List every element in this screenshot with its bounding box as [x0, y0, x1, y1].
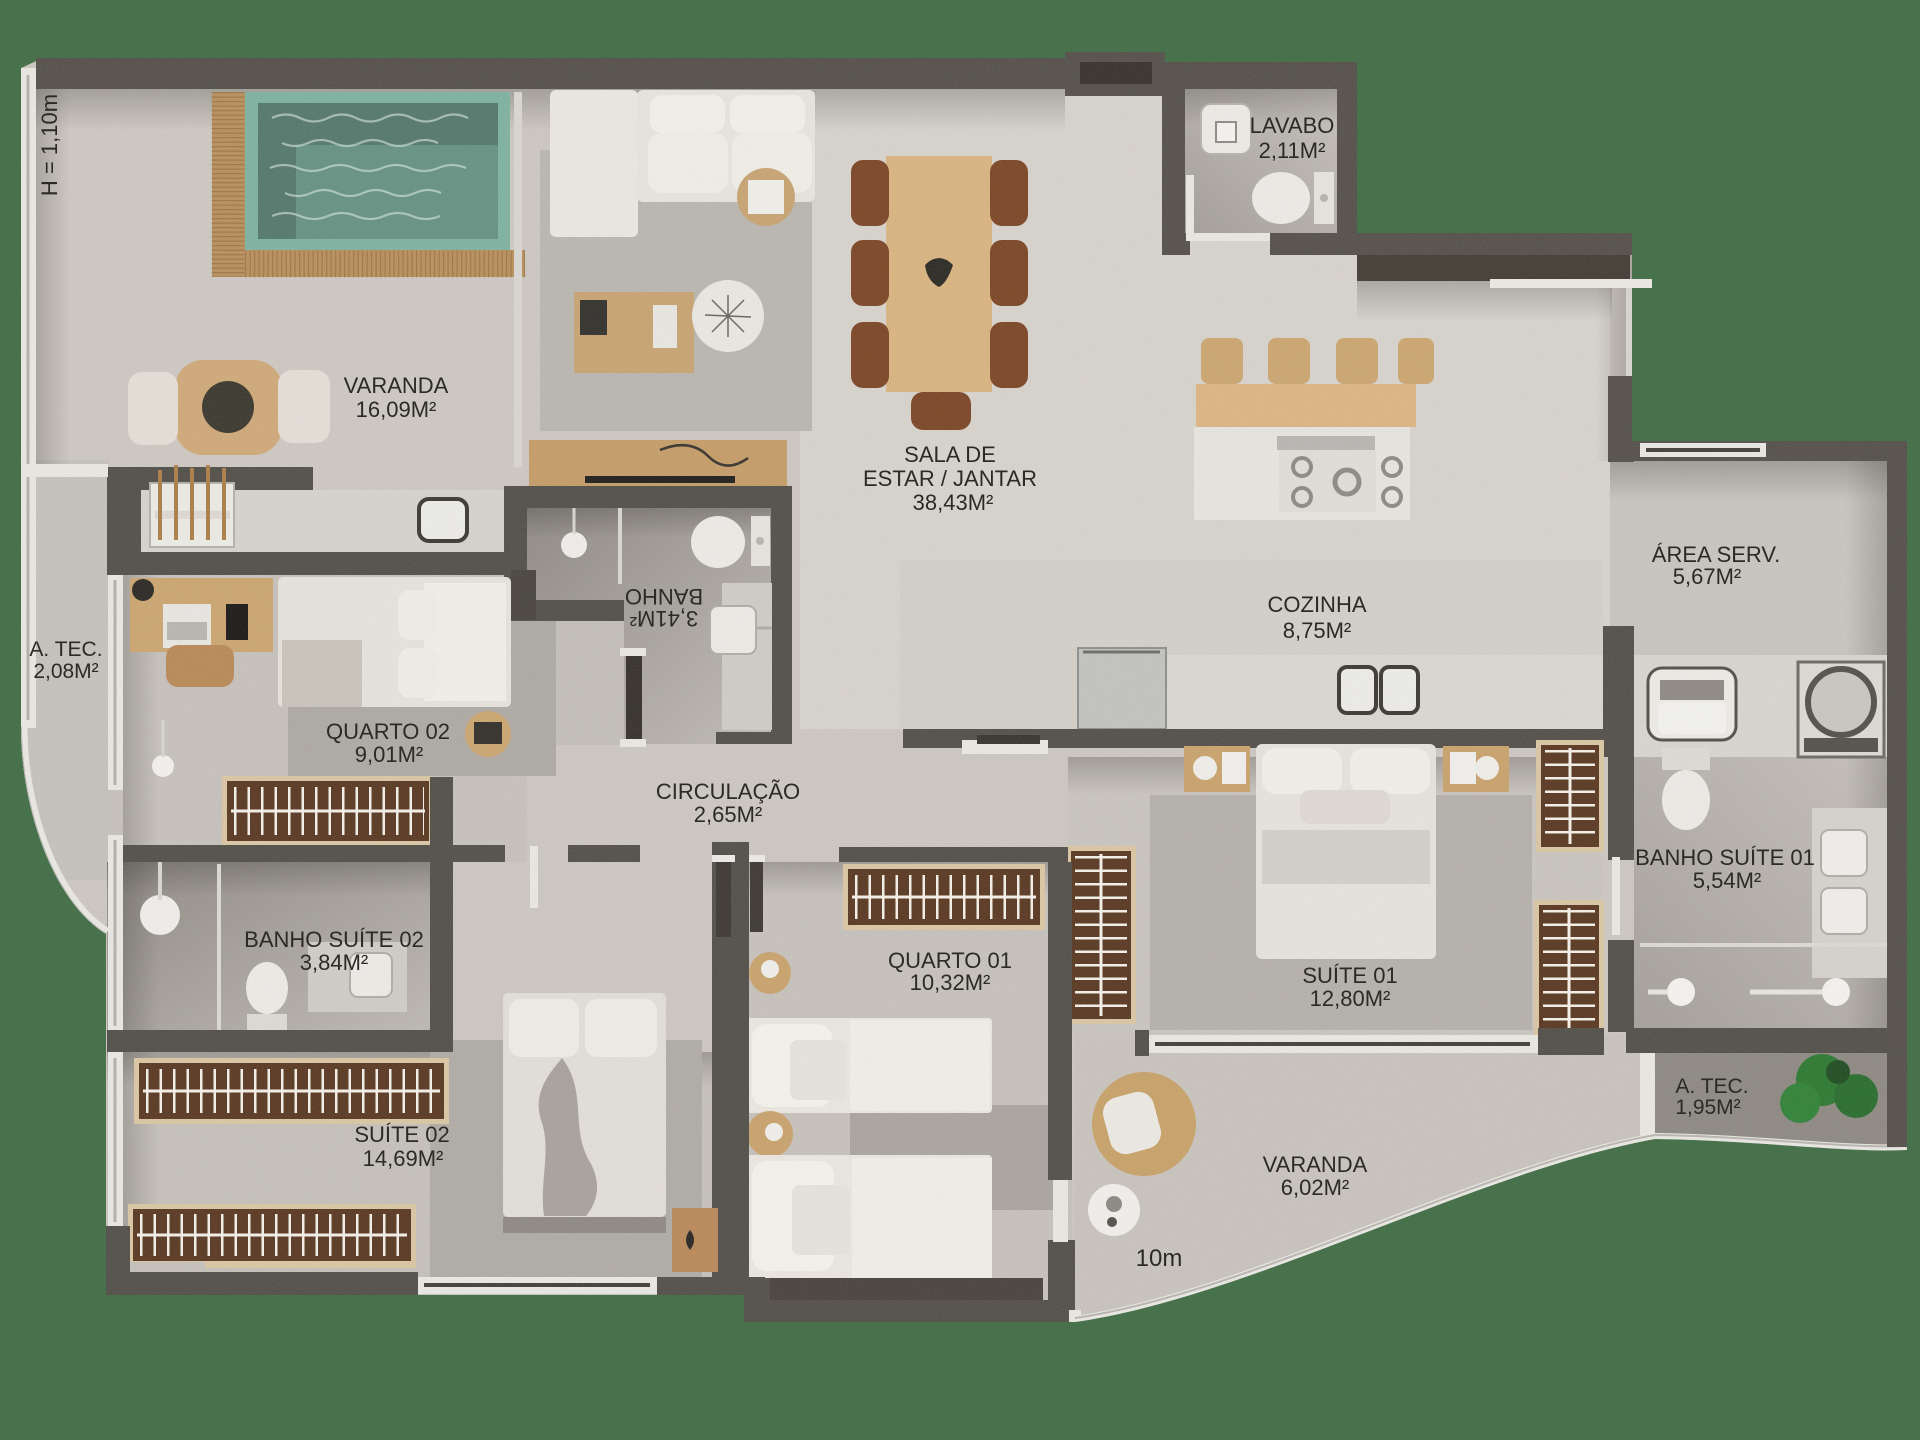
svg-text:5,67M²: 5,67M² [1673, 564, 1741, 589]
svg-text:LAVABO: LAVABO [1250, 113, 1335, 138]
svg-text:1,95M²: 1,95M² [1675, 1096, 1740, 1119]
svg-text:6,02M²: 6,02M² [1281, 1175, 1349, 1200]
svg-text:10m: 10m [1136, 1245, 1183, 1272]
svg-text:BANHO SUÍTE 02: BANHO SUÍTE 02 [244, 927, 424, 952]
svg-text:9,01M²: 9,01M² [355, 742, 423, 767]
svg-text:5,54M²: 5,54M² [1693, 868, 1761, 893]
svg-text:CIRCULAÇÃO: CIRCULAÇÃO [656, 779, 800, 804]
svg-text:3,41M²: 3,41M² [630, 606, 698, 631]
svg-text:SUÍTE 02: SUÍTE 02 [354, 1122, 449, 1147]
svg-text:QUARTO 02: QUARTO 02 [326, 719, 450, 744]
svg-text:BANHO: BANHO [625, 584, 703, 609]
svg-text:2,65M²: 2,65M² [694, 802, 762, 827]
svg-text:ESTAR / JANTAR: ESTAR / JANTAR [863, 466, 1037, 491]
svg-text:VARANDA: VARANDA [344, 373, 449, 398]
svg-text:12,80M²: 12,80M² [1310, 986, 1391, 1011]
svg-text:SALA DE: SALA DE [904, 442, 996, 467]
svg-text:3,84M²: 3,84M² [300, 950, 368, 975]
svg-text:COZINHA: COZINHA [1268, 592, 1367, 617]
svg-text:14,69M²: 14,69M² [363, 1146, 444, 1171]
svg-text:38,43M²: 38,43M² [913, 490, 994, 515]
svg-text:16,09M²: 16,09M² [356, 397, 437, 422]
svg-text:10,32M²: 10,32M² [910, 970, 991, 995]
svg-text:2,08M²: 2,08M² [33, 660, 98, 683]
svg-text:H = 1,10m: H = 1,10m [37, 94, 62, 196]
svg-text:VARANDA: VARANDA [1263, 1152, 1368, 1177]
svg-text:BANHO SUÍTE 01: BANHO SUÍTE 01 [1635, 845, 1815, 870]
svg-text:2,11M²: 2,11M² [1259, 138, 1326, 163]
svg-text:A. TEC.: A. TEC. [1675, 1075, 1748, 1098]
svg-text:8,75M²: 8,75M² [1283, 618, 1351, 643]
svg-text:SUÍTE 01: SUÍTE 01 [1302, 963, 1397, 988]
svg-text:A. TEC.: A. TEC. [29, 638, 102, 661]
